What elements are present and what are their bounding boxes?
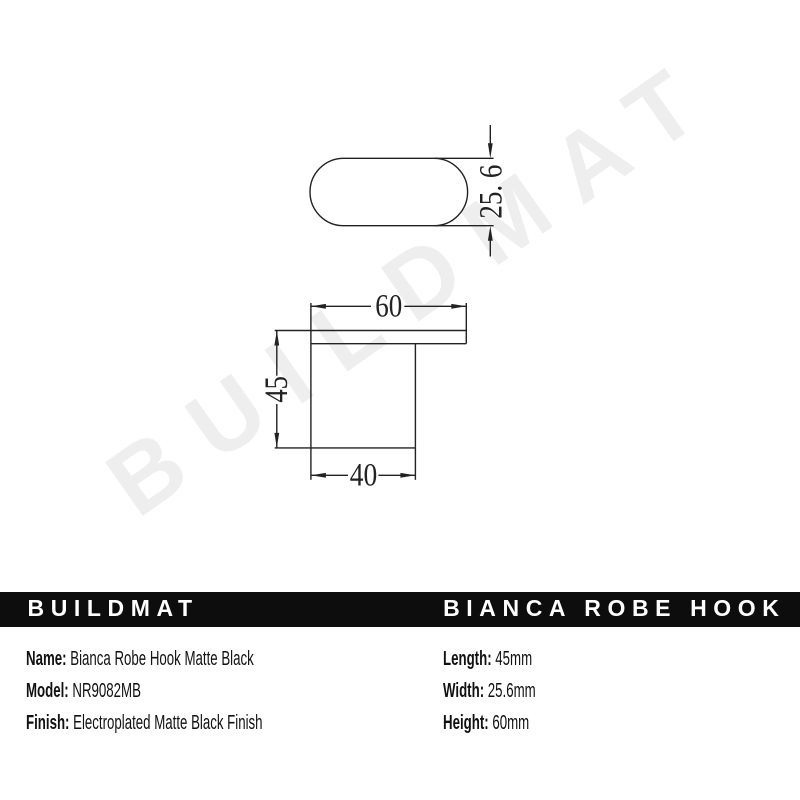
svg-text:40: 40 [350, 458, 378, 494]
svg-text:45: 45 [259, 376, 295, 403]
svg-text:60: 60 [375, 289, 402, 325]
svg-text:25. 6: 25. 6 [473, 165, 509, 219]
